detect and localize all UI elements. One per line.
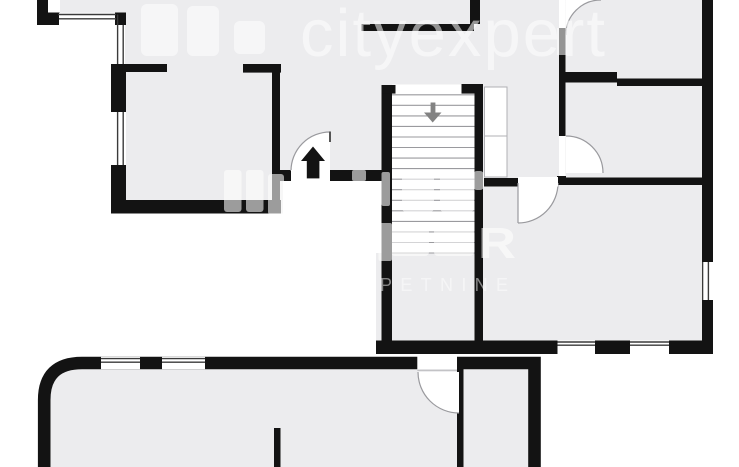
- svg-text:R: R: [478, 219, 516, 268]
